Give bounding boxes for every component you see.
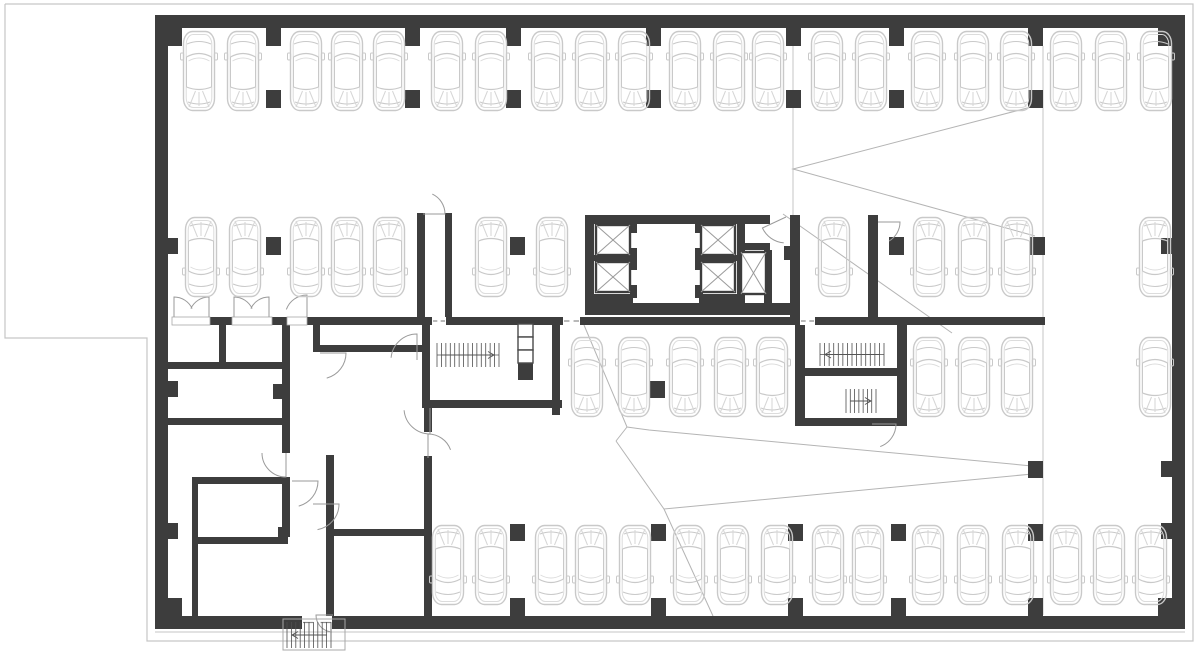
door-swing	[292, 481, 318, 506]
wall-segment	[196, 537, 288, 544]
door-swing	[262, 453, 286, 477]
parked-car	[1048, 526, 1085, 605]
column	[1161, 461, 1172, 477]
parked-car	[617, 526, 654, 605]
door-threshold	[232, 317, 272, 325]
stair-flight	[820, 343, 884, 366]
parked-car	[999, 338, 1036, 417]
door-swing	[251, 297, 269, 317]
wall-segment	[313, 345, 430, 352]
duct-layer	[518, 324, 533, 363]
parked-car	[759, 526, 796, 605]
wall-segment	[424, 456, 432, 618]
duct-shaft	[518, 337, 533, 350]
elevator-shaft	[596, 225, 630, 255]
parked-car	[1000, 526, 1037, 605]
duct-shaft	[518, 324, 533, 337]
parked-car	[671, 526, 708, 605]
wall-segment	[219, 325, 226, 362]
parked-car	[227, 218, 264, 297]
stair-flight	[846, 389, 876, 413]
wall-segment	[1172, 15, 1185, 629]
wall-segment	[518, 363, 533, 380]
parked-car	[853, 32, 890, 111]
parked-car	[711, 32, 748, 111]
wall-segment	[699, 294, 739, 303]
wall-segment	[282, 318, 290, 384]
parked-car	[809, 32, 846, 111]
column	[786, 28, 801, 46]
parked-car	[371, 32, 408, 111]
column	[510, 237, 525, 255]
ramp-guide-line	[616, 441, 1043, 509]
duct-shaft	[518, 350, 533, 363]
parked-car	[1093, 32, 1130, 111]
column	[405, 28, 420, 46]
wall-segment	[155, 15, 1185, 28]
wall-segment	[588, 294, 633, 303]
parked-car	[911, 338, 948, 417]
parked-car	[225, 32, 262, 111]
parked-car	[534, 218, 571, 297]
door-threshold	[172, 317, 210, 325]
wall-segment	[585, 215, 770, 224]
column	[786, 90, 801, 108]
wall-segment	[805, 368, 897, 376]
parked-car	[667, 32, 704, 111]
floor-plan-canvas	[0, 0, 1200, 654]
parked-car	[750, 32, 787, 111]
wall-segment	[815, 317, 1045, 325]
wall-segment	[580, 317, 800, 325]
parked-car	[473, 218, 510, 297]
door-swing	[872, 424, 896, 447]
parked-car	[288, 32, 325, 111]
column	[266, 237, 281, 255]
wall-segment	[422, 325, 430, 408]
parked-car	[667, 338, 704, 417]
wall-segment	[446, 317, 563, 325]
wall-segment	[422, 400, 562, 408]
parked-car	[1138, 32, 1175, 111]
ramp-guide-line	[616, 427, 627, 441]
parked-car	[998, 32, 1035, 111]
column	[1028, 524, 1043, 541]
door-swing	[234, 297, 252, 317]
ramp-guide-line	[783, 214, 952, 333]
parked-car	[1137, 338, 1174, 417]
wall-segment	[552, 324, 560, 415]
parked-car	[956, 338, 993, 417]
wall-segment	[192, 484, 198, 618]
column	[510, 598, 525, 616]
wall-segment	[307, 317, 432, 325]
parked-car	[430, 526, 467, 605]
column	[266, 28, 281, 46]
wall-segment	[897, 318, 907, 426]
parked-car	[850, 526, 887, 605]
parked-car	[715, 526, 752, 605]
parked-car	[616, 32, 653, 111]
wall-segment	[790, 215, 800, 317]
door-swing	[286, 295, 307, 317]
parked-car	[956, 218, 993, 297]
parked-car	[529, 32, 566, 111]
wall-segment	[192, 477, 290, 484]
column	[650, 381, 665, 398]
parked-car	[569, 338, 606, 417]
column	[506, 28, 521, 46]
wall-segment	[784, 246, 791, 260]
parked-car	[371, 218, 408, 297]
parked-car	[616, 338, 653, 417]
door-swing	[428, 434, 451, 458]
parked-car	[955, 526, 992, 605]
wall-segment	[278, 527, 288, 542]
wall-segment	[282, 399, 290, 453]
column	[891, 598, 906, 616]
parked-car	[955, 32, 992, 111]
parked-car	[810, 526, 847, 605]
wall-segment	[273, 384, 290, 399]
parked-car	[712, 338, 749, 417]
parked-car	[1091, 526, 1128, 605]
door-swing	[423, 194, 445, 214]
wall-segment	[445, 213, 452, 325]
wall-segment	[585, 303, 800, 315]
floor-plan-svg	[0, 0, 1200, 654]
parked-car	[999, 218, 1036, 297]
parked-car	[754, 338, 791, 417]
column	[651, 598, 666, 616]
parked-car	[910, 526, 947, 605]
column	[510, 524, 525, 541]
wall-segment	[737, 243, 770, 250]
wall-segment	[326, 529, 430, 536]
column	[167, 523, 178, 539]
wall-segment	[424, 408, 432, 432]
wall-segment	[168, 362, 288, 369]
parked-car	[1048, 32, 1085, 111]
parked-car	[181, 32, 218, 111]
door-swing	[191, 297, 209, 317]
parked-car	[816, 218, 853, 297]
wall-segment	[168, 418, 290, 425]
elevator-shaft	[701, 262, 735, 292]
wall-segment	[795, 318, 805, 426]
parked-car	[473, 526, 510, 605]
column	[266, 90, 281, 108]
parked-car	[533, 526, 570, 605]
parked-car	[573, 526, 610, 605]
parked-car	[329, 32, 366, 111]
parked-car	[573, 32, 610, 111]
parked-car	[473, 32, 510, 111]
parked-car	[429, 32, 466, 111]
parked-car	[911, 218, 948, 297]
wall-segment	[417, 213, 425, 325]
door-swing	[174, 297, 192, 317]
wall-segment	[326, 455, 334, 618]
column	[506, 90, 521, 108]
column	[889, 28, 904, 46]
column	[167, 381, 178, 397]
column	[1028, 461, 1043, 478]
column	[167, 238, 178, 254]
parked-car	[1133, 526, 1170, 605]
parked-car	[329, 218, 366, 297]
wall-segment	[210, 317, 233, 325]
wall-segment	[795, 418, 907, 426]
parked-car	[1137, 218, 1174, 297]
elevator-shaft	[596, 262, 630, 292]
elevator-shaft	[701, 225, 735, 255]
door-swing	[320, 353, 346, 378]
column	[891, 524, 906, 541]
column	[651, 524, 666, 541]
column	[405, 90, 420, 108]
ramp-guide-line	[793, 106, 1035, 236]
wall-segment	[168, 28, 182, 46]
door-threshold	[287, 317, 307, 325]
elevator-shaft	[741, 252, 766, 294]
wall-segment	[155, 15, 168, 629]
parked-car	[183, 218, 220, 297]
column	[889, 90, 904, 108]
stair-flight	[437, 343, 499, 367]
column	[167, 598, 178, 614]
wall-segment	[868, 215, 878, 317]
parked-car	[909, 32, 946, 111]
parked-car	[288, 218, 325, 297]
